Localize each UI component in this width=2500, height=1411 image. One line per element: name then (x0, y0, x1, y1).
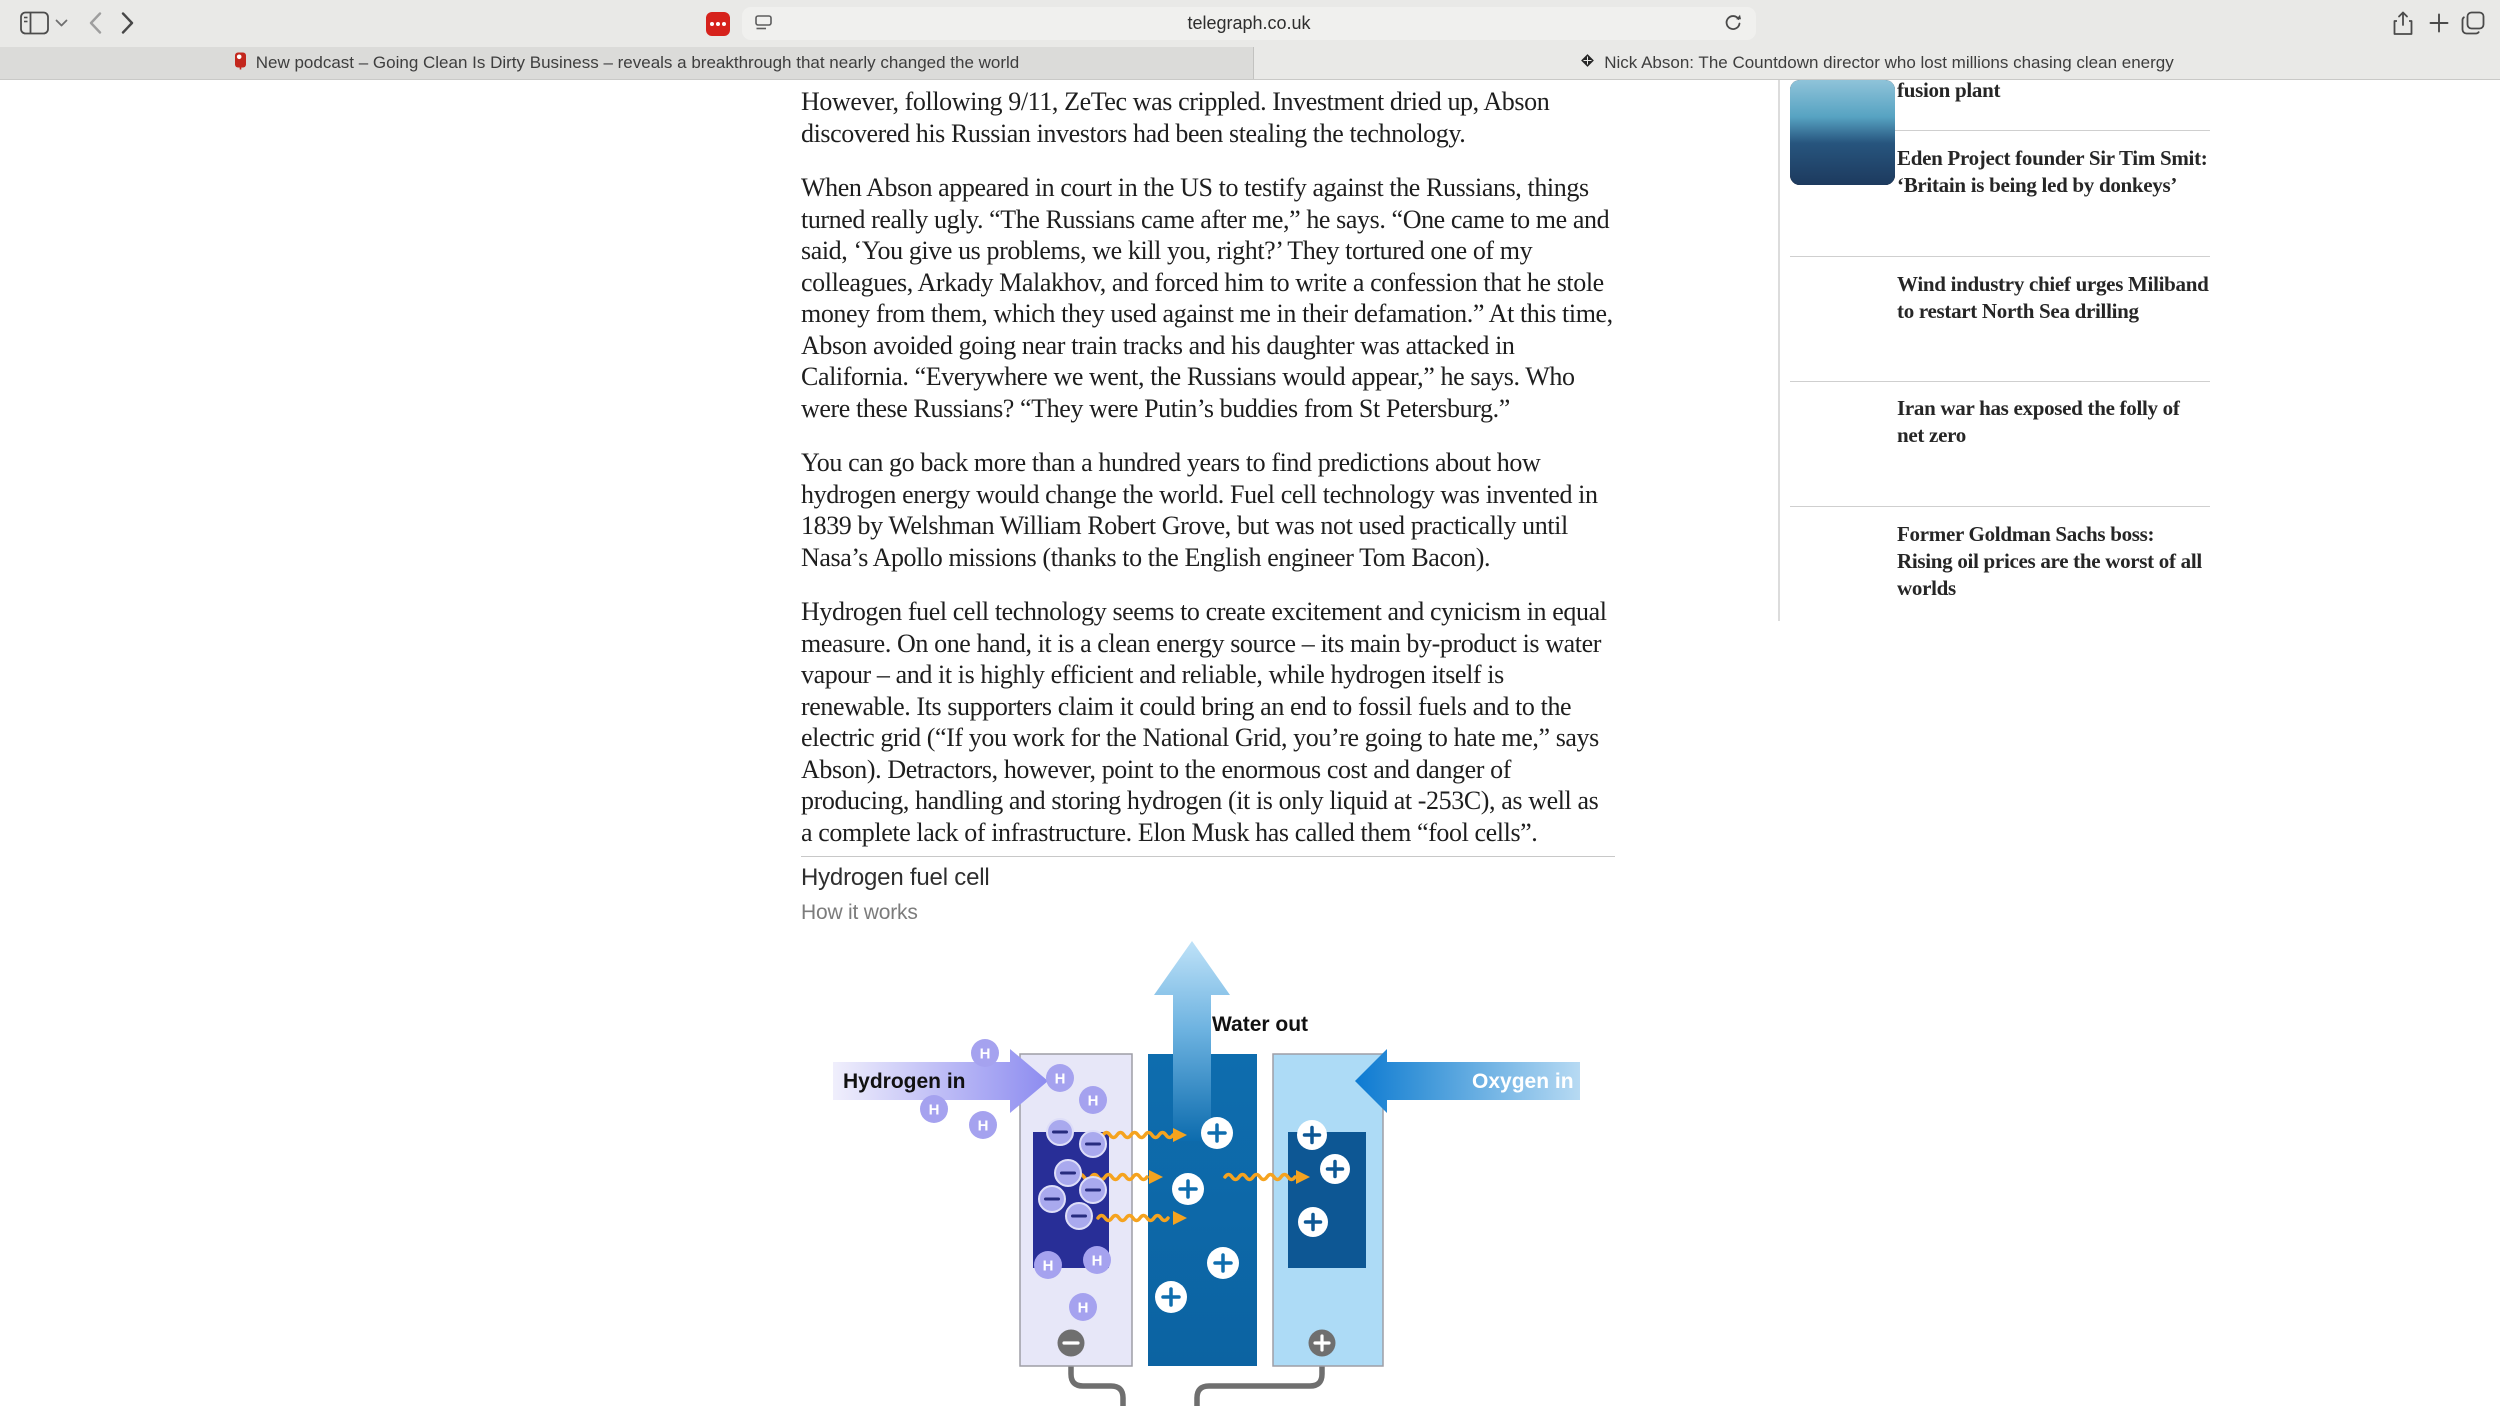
svg-text:H: H (1055, 1071, 1066, 1088)
sidebar-toggle-button[interactable] (20, 10, 50, 36)
tab-article[interactable]: Nick Abson: The Countdown director who l… (1254, 47, 2500, 79)
svg-text:H: H (1078, 1300, 1089, 1317)
electron (1047, 1119, 1073, 1145)
tab-overview-icon (2461, 11, 2485, 35)
electron (1066, 1203, 1092, 1229)
new-tab-button[interactable] (2424, 10, 2454, 36)
proton (1172, 1173, 1204, 1205)
article-paragraphs: However, following 9/11, ZeTec was cripp… (801, 80, 1615, 856)
related-headline[interactable]: Wind industry chief urges Miliband to re… (1897, 271, 2209, 325)
hydrogen-atom: H (920, 1095, 948, 1123)
electron (1055, 1160, 1081, 1186)
related-headline[interactable]: Eden Project founder Sir Tim Smit: ‘Brit… (1897, 145, 2209, 199)
page-content: However, following 9/11, ZeTec was cripp… (0, 80, 2500, 1406)
hydrogen-atom: H (1069, 1293, 1097, 1321)
hydrogen-in-label: Hydrogen in (843, 1070, 966, 1093)
hydrogen-atom: H (1034, 1251, 1062, 1279)
forward-button[interactable] (112, 10, 142, 36)
svg-text:H: H (929, 1102, 940, 1119)
section-divider (801, 856, 1615, 857)
telegraph-favicon-icon (1580, 53, 1595, 73)
oxygen-in-label: Oxygen in (1472, 1070, 1574, 1093)
tab-bar: New podcast – Going Clean Is Dirty Busin… (0, 47, 2500, 80)
proton (1298, 1207, 1328, 1237)
address-bar[interactable]: telegraph.co.uk (742, 7, 1756, 40)
paragraph: Hydrogen fuel cell technology seems to c… (801, 596, 1615, 848)
fuel-cell-diagram: Water out Hydrogen in Oxygen in HHHHHHHH (820, 936, 1580, 1406)
sidebar-icon (20, 11, 50, 35)
water-out-label: Water out (1212, 1013, 1308, 1036)
article-body: However, following 9/11, ZeTec was cripp… (801, 80, 1615, 856)
paragraph: However, following 9/11, ZeTec was cripp… (801, 86, 1615, 149)
proton (1297, 1120, 1327, 1150)
share-icon (2393, 11, 2413, 36)
svg-text:H: H (1043, 1258, 1054, 1275)
back-button[interactable] (80, 10, 110, 36)
sidebar-chevron-button[interactable] (52, 10, 70, 36)
electron (1039, 1186, 1065, 1212)
hydrogen-atom: H (1083, 1246, 1111, 1274)
electron (1080, 1131, 1106, 1157)
electron (1080, 1177, 1106, 1203)
svg-text:H: H (980, 1046, 991, 1063)
positive-terminal (1309, 1330, 1336, 1357)
hydrogen-atom: H (1046, 1064, 1074, 1092)
plus-icon (2429, 13, 2449, 33)
paragraph: You can go back more than a hundred year… (801, 447, 1615, 573)
svg-text:H: H (1092, 1253, 1103, 1270)
browser-toolbar: telegraph.co.uk (0, 0, 2500, 48)
chevron-down-icon (55, 19, 68, 27)
tab-overview-button[interactable] (2458, 10, 2488, 36)
svg-text:H: H (978, 1118, 989, 1135)
svg-text:H: H (1088, 1093, 1099, 1110)
related-headline[interactable]: Former Goldman Sachs boss: Rising oil pr… (1897, 521, 2209, 602)
section-subtitle: How it works (801, 901, 918, 925)
hydrogen-atom: H (969, 1111, 997, 1139)
proton (1320, 1154, 1350, 1184)
related-headline[interactable]: fusion plant (1897, 80, 2209, 104)
proton (1201, 1117, 1233, 1149)
tab-title: Nick Abson: The Countdown director who l… (1604, 53, 2173, 73)
hydrogen-atom: H (971, 1039, 999, 1067)
tab-title: New podcast – Going Clean Is Dirty Busin… (256, 53, 1020, 73)
forward-icon (121, 12, 134, 34)
hydrogen-atom: H (1079, 1086, 1107, 1114)
list-divider (1790, 256, 2210, 257)
paragraph: When Abson appeared in court in the US t… (801, 172, 1615, 424)
share-button[interactable] (2388, 10, 2418, 36)
proton (1207, 1247, 1239, 1279)
section-title: Hydrogen fuel cell (801, 864, 990, 892)
related-headline[interactable]: Iran war has exposed the folly of net ze… (1897, 395, 2209, 449)
back-icon (89, 12, 102, 34)
negative-terminal (1058, 1330, 1085, 1357)
sidebar-divider (1778, 80, 1780, 621)
tab-pin-icon (234, 52, 247, 75)
related-articles-sidebar: fusion plant Eden Project founder Sir Ti… (1778, 80, 2212, 640)
reload-icon[interactable] (1724, 14, 1742, 33)
proton (1155, 1281, 1187, 1313)
tab-podcast[interactable]: New podcast – Going Clean Is Dirty Busin… (0, 47, 1254, 79)
cathode-electrode (1288, 1132, 1366, 1268)
url-text[interactable]: telegraph.co.uk (742, 13, 1756, 34)
list-divider (1790, 381, 2210, 382)
article-thumbnail[interactable] (1790, 80, 1895, 185)
list-divider (1790, 506, 2210, 507)
extension-button[interactable] (706, 12, 730, 36)
